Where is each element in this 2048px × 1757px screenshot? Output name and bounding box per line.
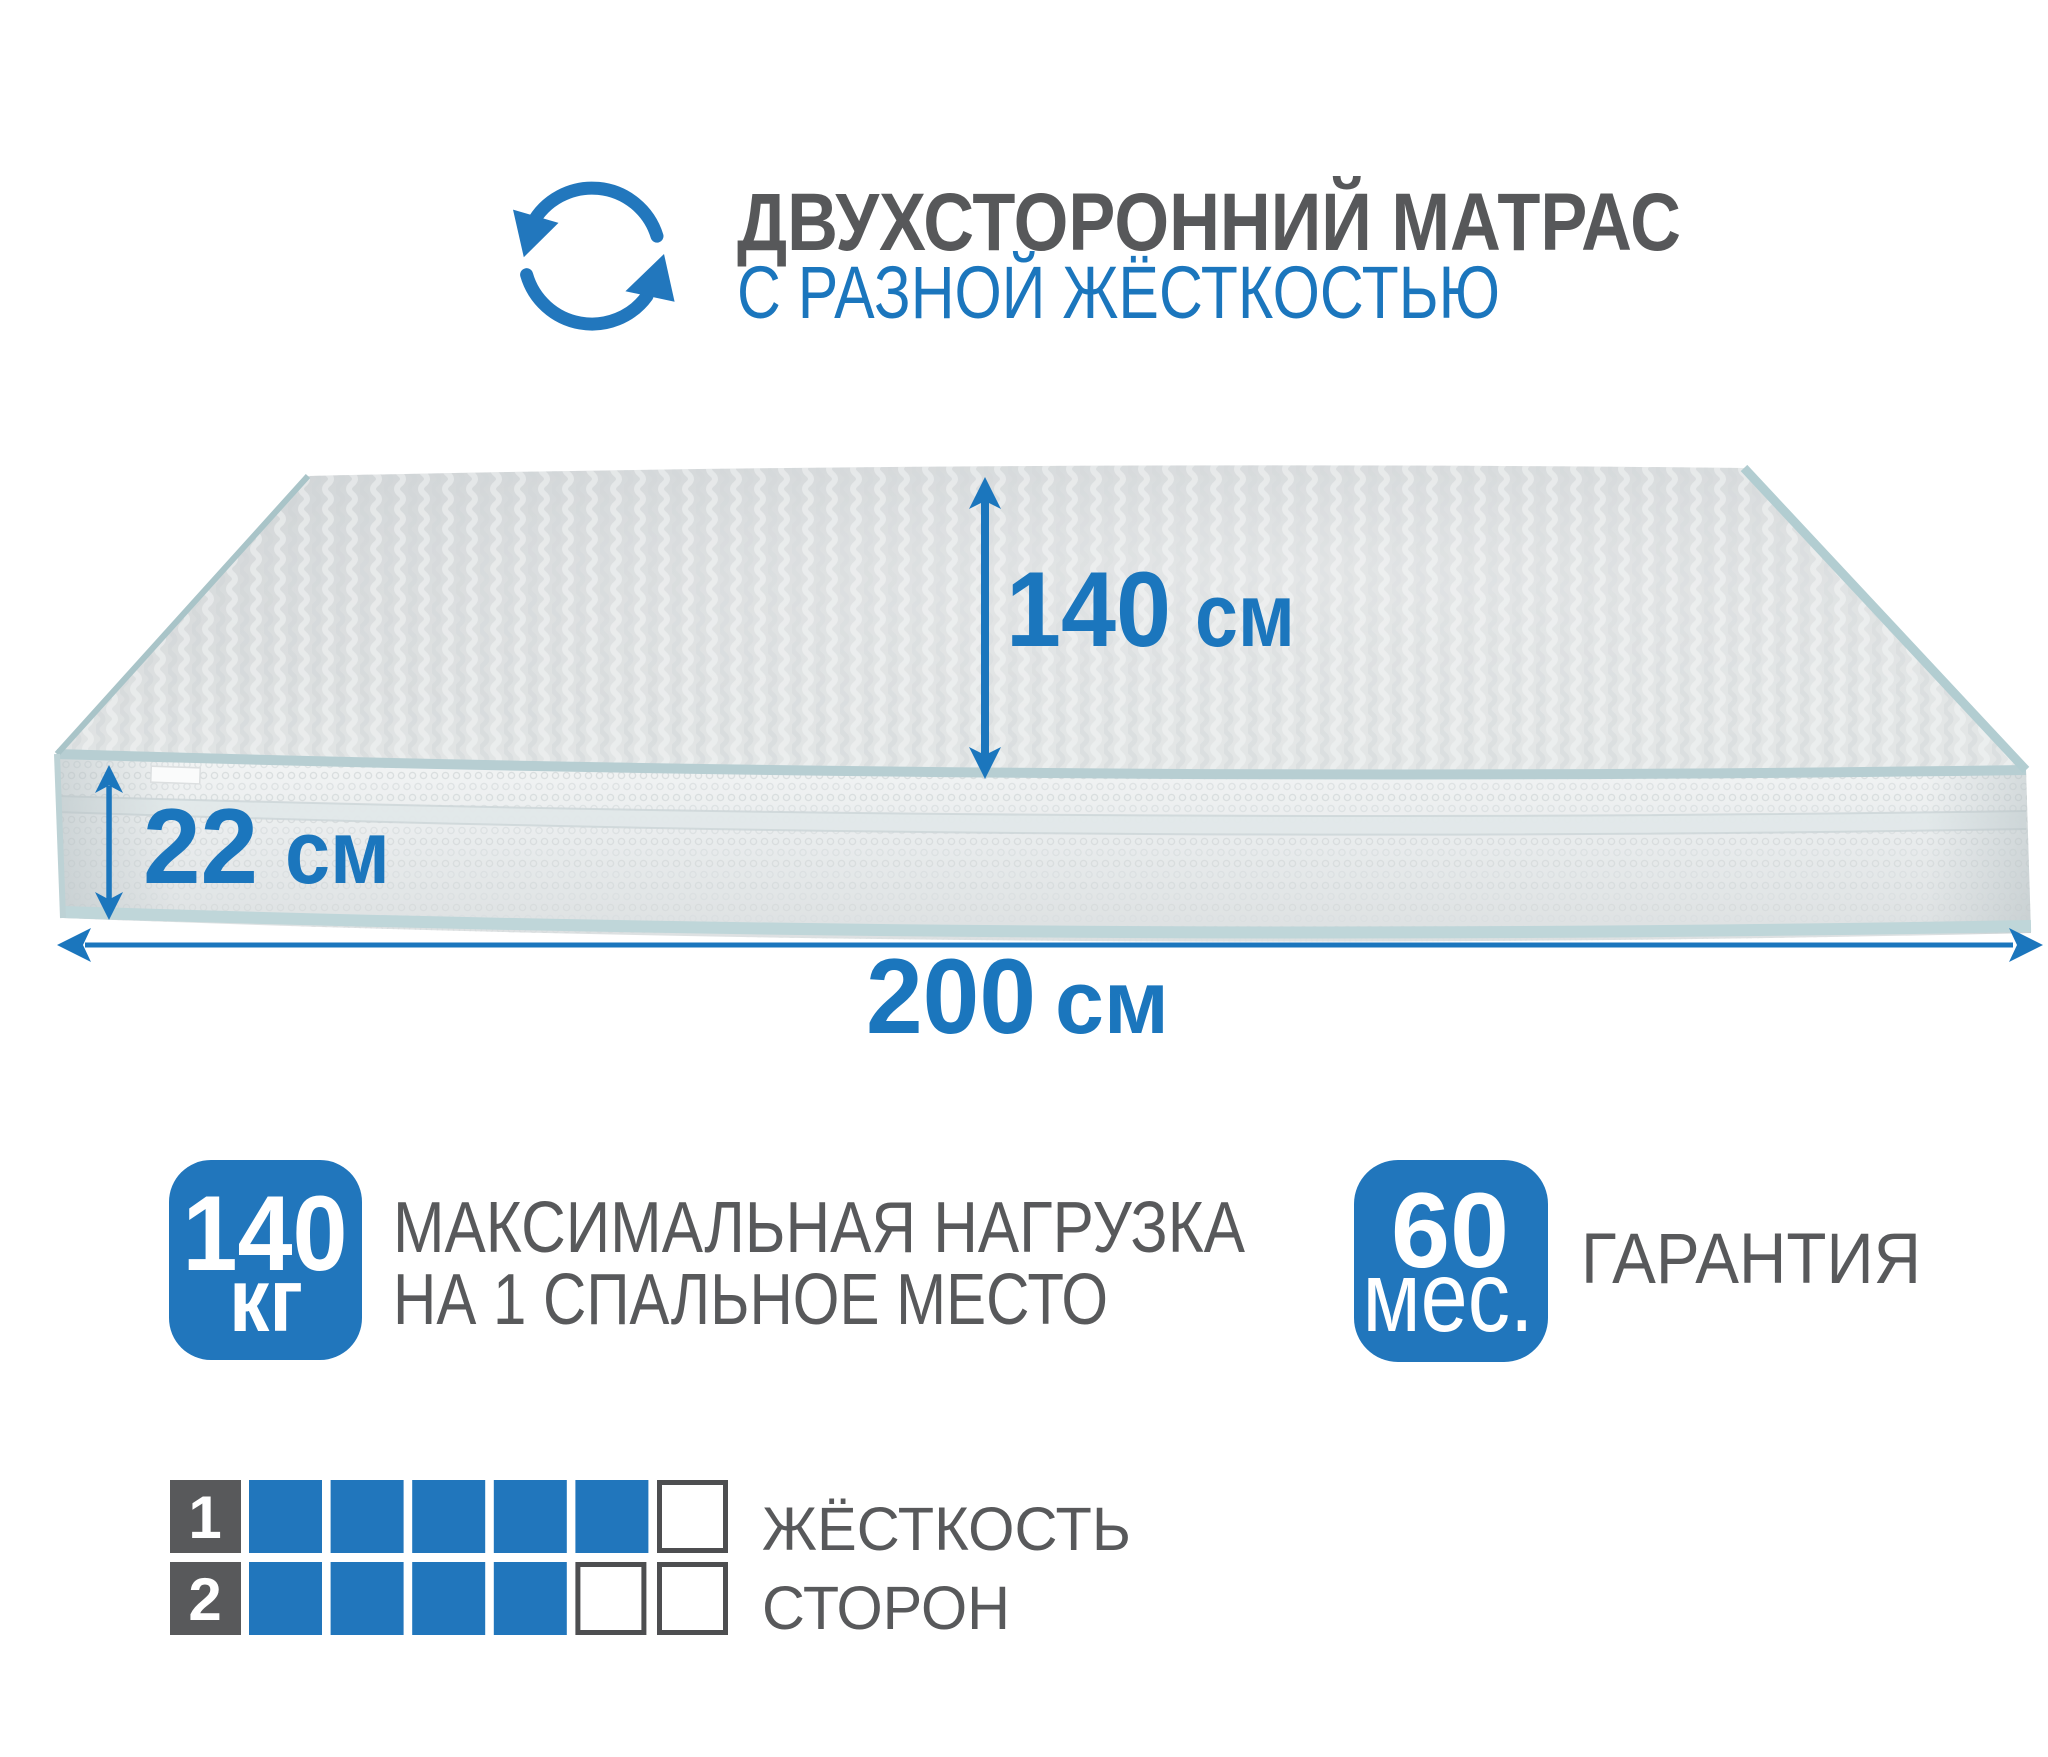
svg-text:С РАЗНОЙ ЖЁСТКОСТЬЮ: С РАЗНОЙ ЖЁСТКОСТЬЮ <box>737 251 1500 334</box>
svg-text:200: 200 <box>866 936 1036 1056</box>
svg-text:ГАРАНТИЯ: ГАРАНТИЯ <box>1581 1220 1921 1299</box>
svg-text:1: 1 <box>188 1484 221 1551</box>
svg-text:НА 1 СПАЛЬНОЕ МЕСТО: НА 1 СПАЛЬНОЕ МЕСТО <box>393 1260 1108 1340</box>
svg-text:см: см <box>1055 953 1169 1053</box>
svg-text:2: 2 <box>188 1566 221 1633</box>
svg-text:МАКСИМАЛЬНАЯ НАГРУЗКА: МАКСИМАЛЬНАЯ НАГРУЗКА <box>393 1188 1245 1268</box>
svg-text:СТОРОН: СТОРОН <box>762 1574 1010 1642</box>
svg-text:кг: кг <box>229 1251 303 1351</box>
svg-text:мес.: мес. <box>1363 1241 1534 1353</box>
svg-text:22: 22 <box>143 786 258 906</box>
svg-text:см: см <box>285 803 390 903</box>
svg-text:140: 140 <box>1006 549 1171 669</box>
svg-text:см: см <box>1195 566 1295 666</box>
svg-text:ЖЁСТКОСТЬ: ЖЁСТКОСТЬ <box>762 1495 1131 1563</box>
